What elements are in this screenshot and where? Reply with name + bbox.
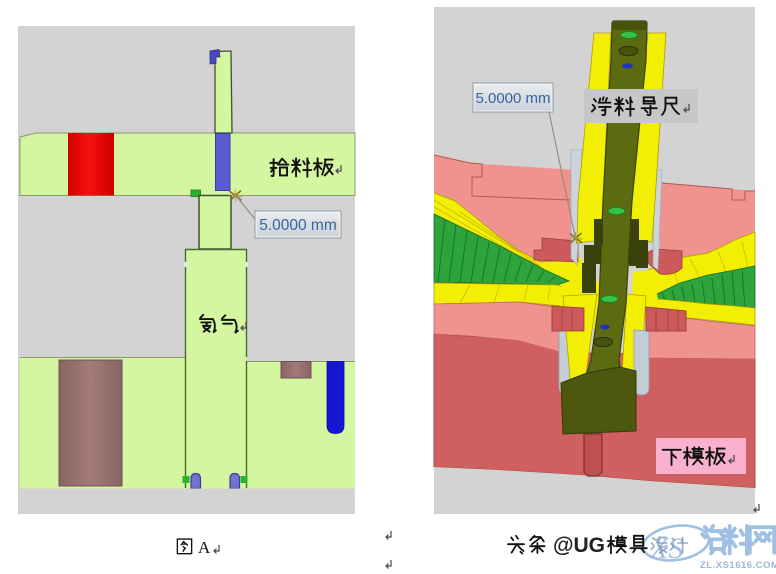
svg-text:ZL.XS1616.COM: ZL.XS1616.COM bbox=[700, 560, 776, 571]
svg-text:A: A bbox=[198, 538, 211, 557]
svg-text:@UG: @UG bbox=[553, 534, 605, 557]
svg-text:5.0000 mm: 5.0000 mm bbox=[259, 217, 337, 234]
svg-text:5.0000 mm: 5.0000 mm bbox=[475, 90, 550, 107]
